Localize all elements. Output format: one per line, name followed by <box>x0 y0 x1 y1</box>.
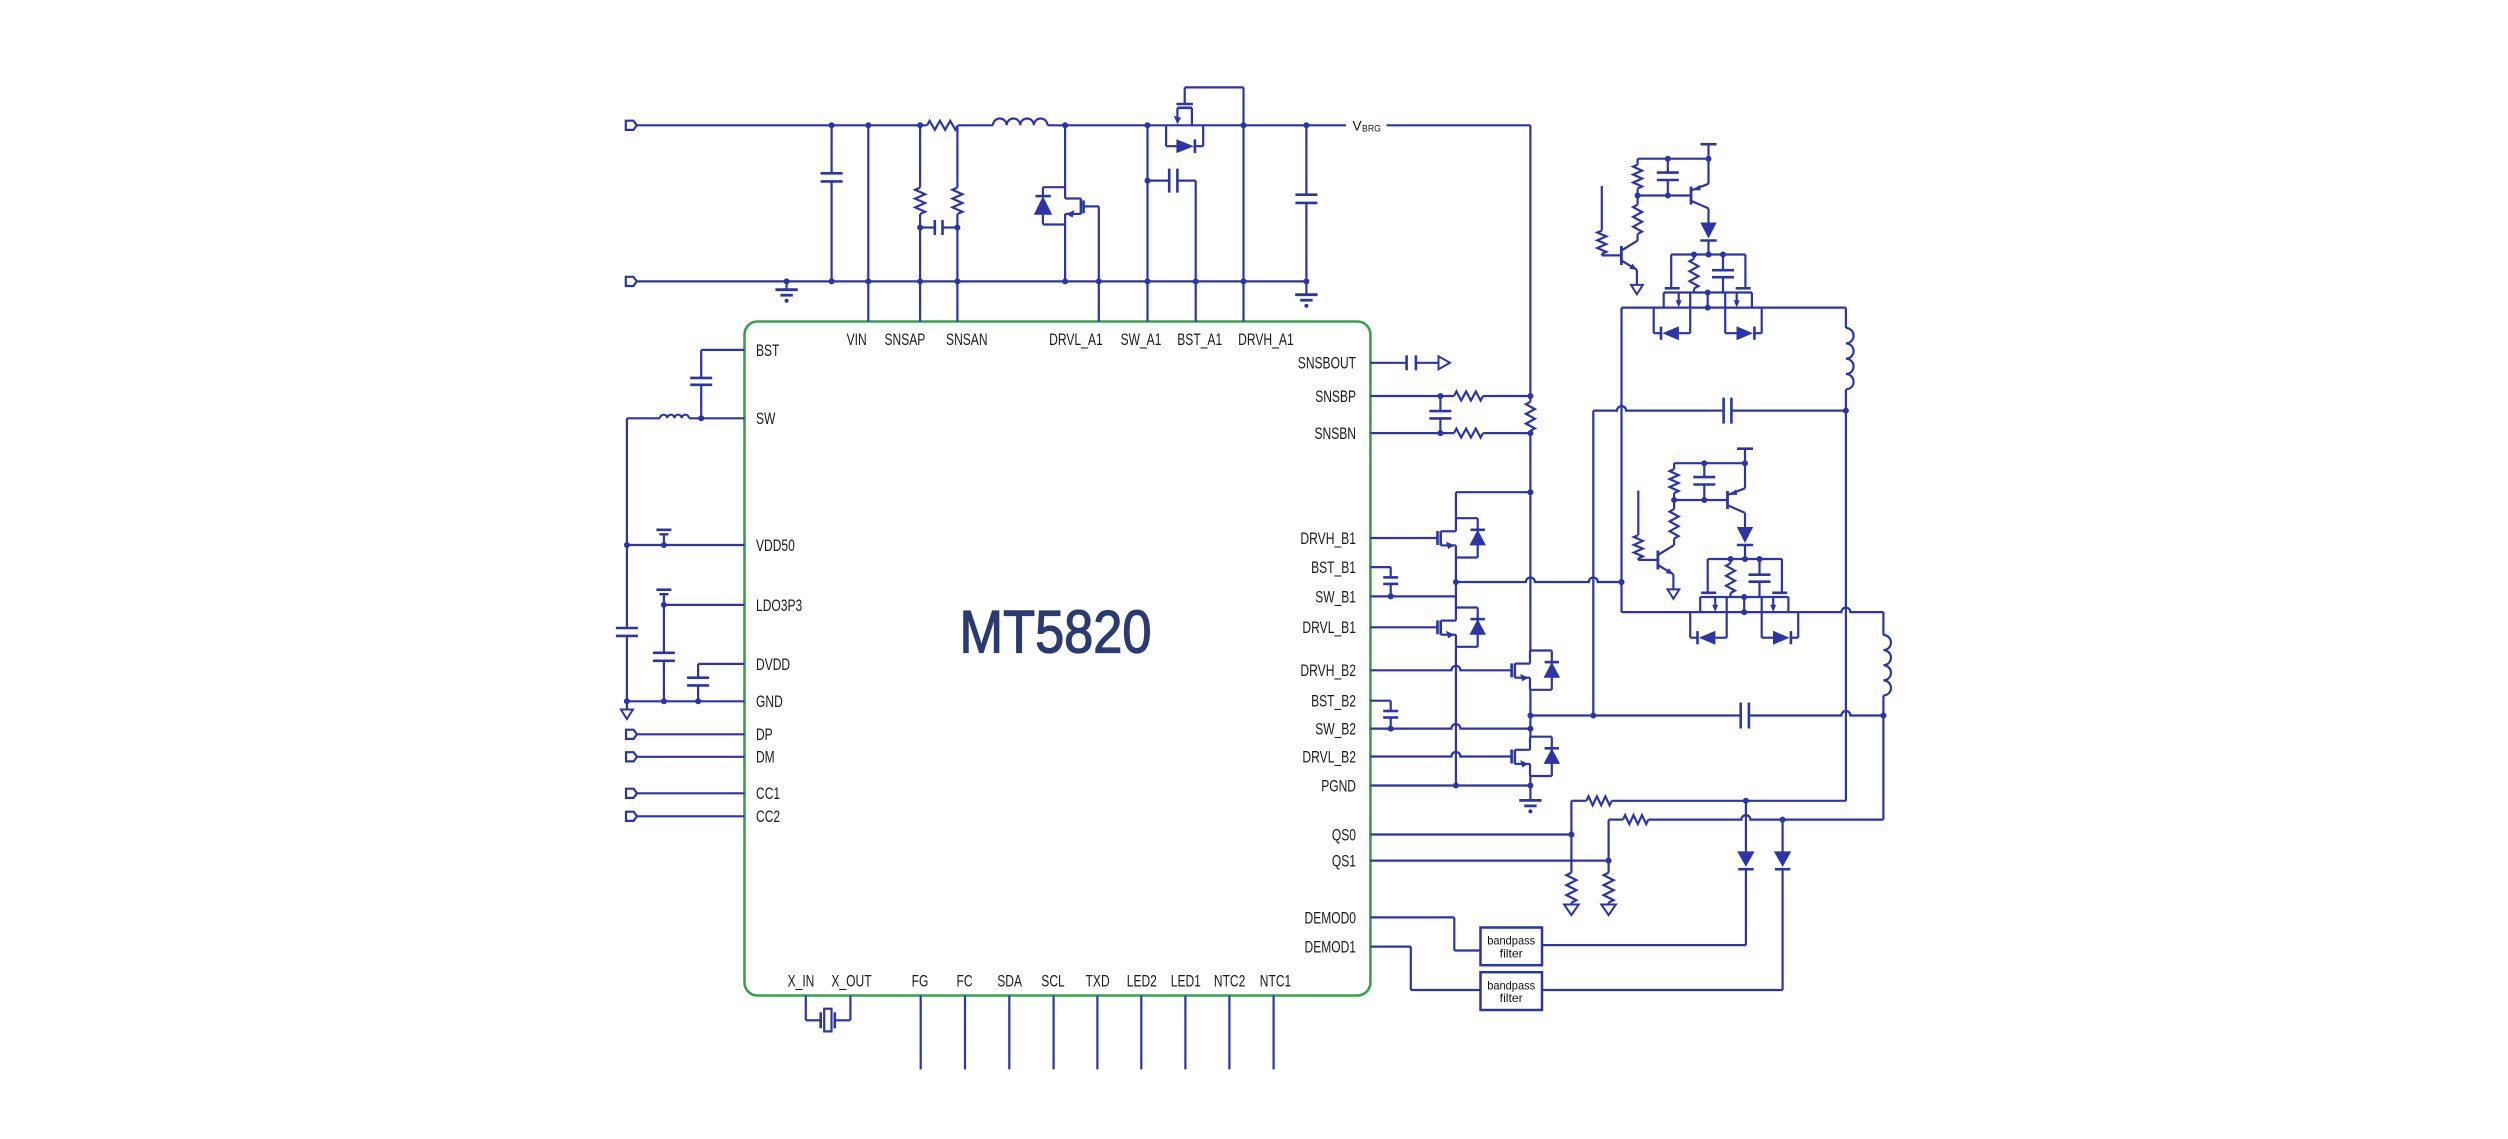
svg-text:NTC2: NTC2 <box>1214 973 1245 991</box>
svg-text:DVDD: DVDD <box>756 656 790 674</box>
svg-text:CC2: CC2 <box>756 808 780 826</box>
svg-text:VIN: VIN <box>847 331 867 349</box>
svg-text:DRVH_B2: DRVH_B2 <box>1300 662 1356 680</box>
svg-text:DRVL_A1: DRVL_A1 <box>1049 331 1103 349</box>
svg-text:DRVL_B2: DRVL_B2 <box>1302 748 1356 766</box>
svg-text:FC: FC <box>956 973 972 991</box>
svg-text:SNSBN: SNSBN <box>1315 425 1357 443</box>
svg-text:LED1: LED1 <box>1171 973 1201 991</box>
svg-text:DM: DM <box>756 749 775 767</box>
svg-text:FG: FG <box>912 973 929 991</box>
svg-text:SW: SW <box>756 410 776 428</box>
svg-text:DRVH_B1: DRVH_B1 <box>1300 530 1356 548</box>
svg-text:SNSBOUT: SNSBOUT <box>1298 355 1356 373</box>
svg-text:X_OUT: X_OUT <box>831 973 871 991</box>
svg-text:DRVH_A1: DRVH_A1 <box>1238 331 1294 349</box>
svg-text:NTC1: NTC1 <box>1260 973 1291 991</box>
svg-text:DRVL_B1: DRVL_B1 <box>1302 619 1356 637</box>
svg-text:SNSAN: SNSAN <box>946 331 988 349</box>
svg-text:V: V <box>1353 118 1362 133</box>
svg-text:BST_A1: BST_A1 <box>1177 331 1222 349</box>
svg-text:SNSAP: SNSAP <box>885 331 926 349</box>
svg-text:MT5820: MT5820 <box>960 599 1152 666</box>
svg-text:PGND: PGND <box>1321 777 1356 795</box>
svg-text:SW_B1: SW_B1 <box>1315 588 1356 606</box>
svg-text:SW_B2: SW_B2 <box>1315 721 1356 739</box>
svg-text:BST_B1: BST_B1 <box>1311 559 1356 577</box>
svg-text:DEMOD0: DEMOD0 <box>1305 909 1357 927</box>
svg-text:DEMOD1: DEMOD1 <box>1305 939 1357 957</box>
svg-text:TXD: TXD <box>1086 973 1110 991</box>
svg-text:BST_B2: BST_B2 <box>1311 693 1356 711</box>
svg-text:LDO3P3: LDO3P3 <box>756 597 802 615</box>
svg-text:SDA: SDA <box>997 973 1022 991</box>
svg-text:QS0: QS0 <box>1332 826 1356 844</box>
svg-text:filter: filter <box>1500 991 1523 1005</box>
svg-text:GND: GND <box>756 693 783 711</box>
svg-text:DP: DP <box>756 726 773 744</box>
svg-text:X_IN: X_IN <box>788 973 815 991</box>
svg-text:SNSBP: SNSBP <box>1315 388 1356 406</box>
svg-text:CC1: CC1 <box>756 785 780 803</box>
svg-text:BST: BST <box>756 342 779 360</box>
svg-text:BRG: BRG <box>1362 123 1381 134</box>
svg-text:VDD50: VDD50 <box>756 537 795 555</box>
svg-text:SW_A1: SW_A1 <box>1121 331 1162 349</box>
svg-text:filter: filter <box>1500 946 1523 960</box>
svg-text:SCL: SCL <box>1041 973 1064 991</box>
svg-text:LED2: LED2 <box>1127 973 1157 991</box>
svg-text:QS1: QS1 <box>1332 853 1356 871</box>
